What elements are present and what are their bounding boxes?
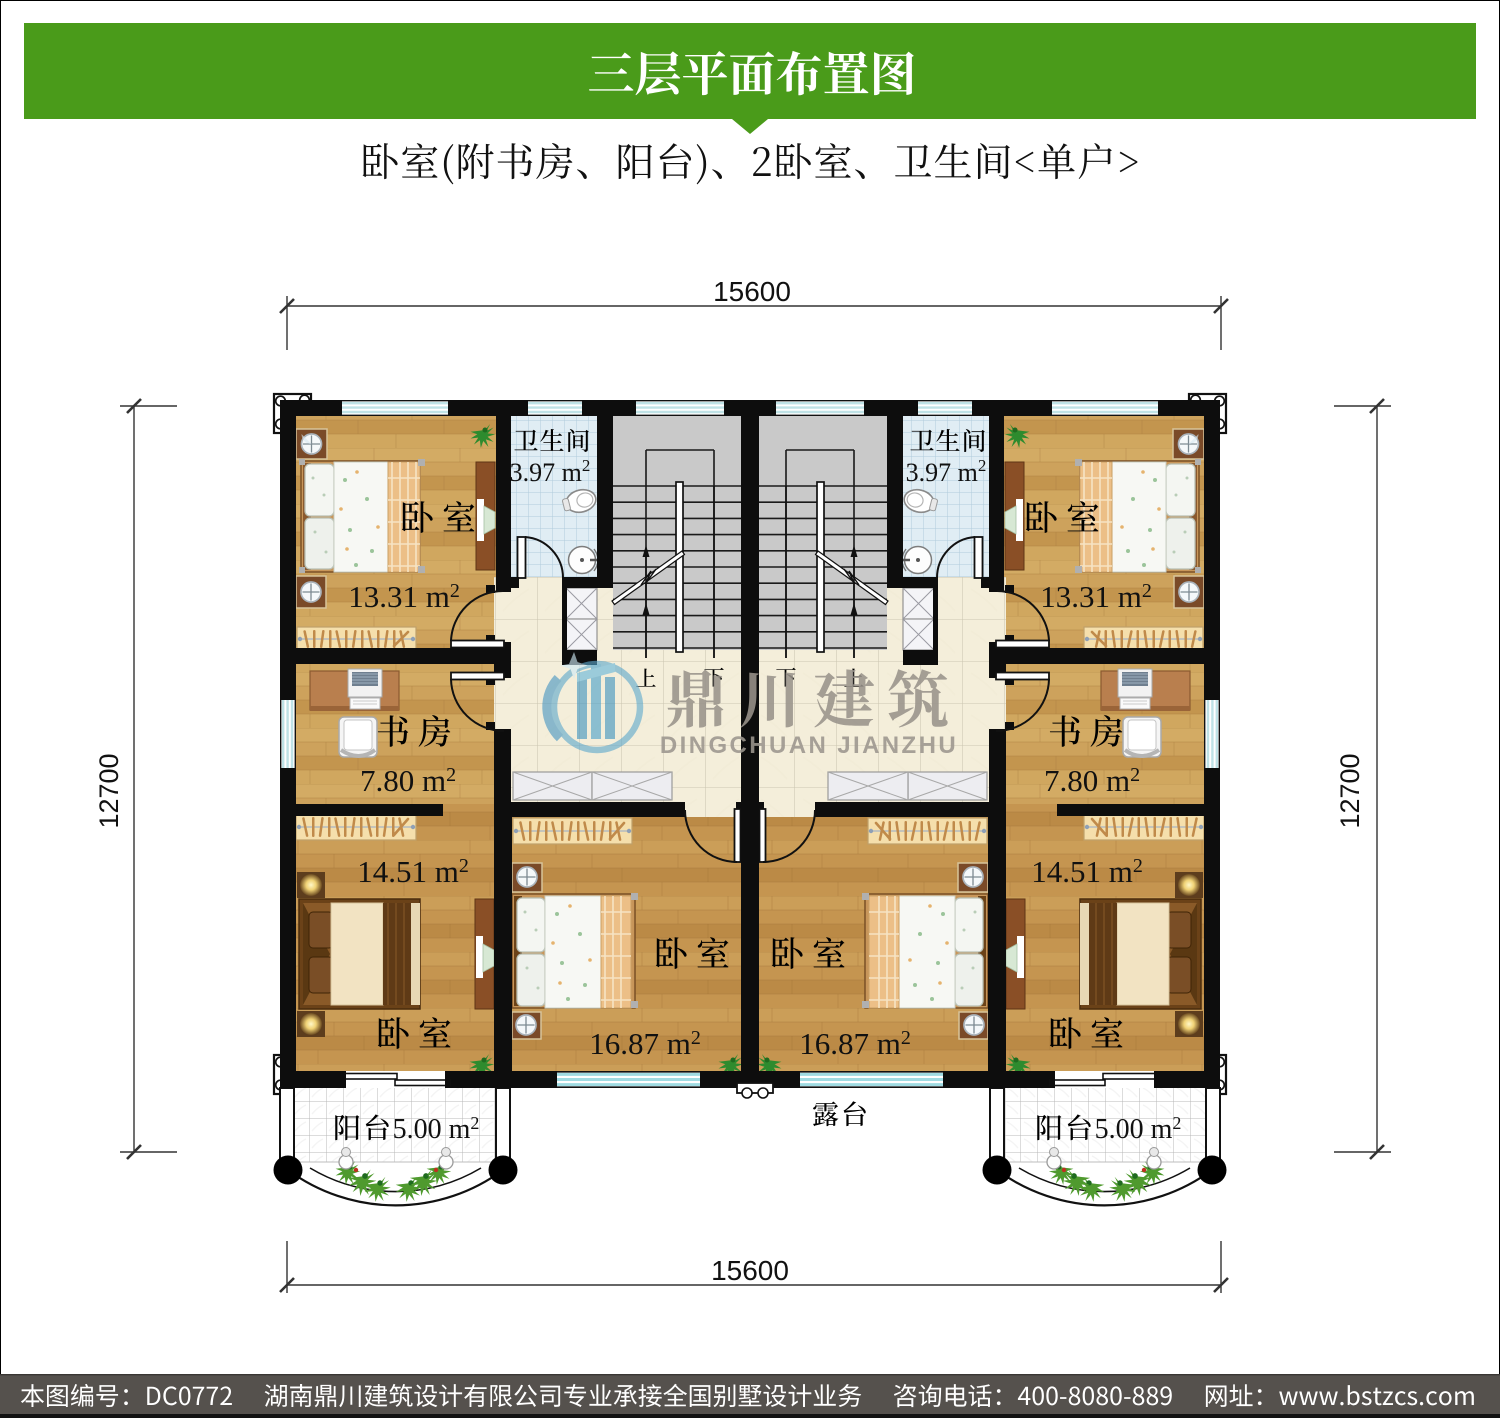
svg-text:16.87 m2: 16.87 m2 bbox=[799, 1026, 911, 1061]
svg-text:5.00 m2: 5.00 m2 bbox=[1095, 1113, 1182, 1145]
svg-text:16.87 m2: 16.87 m2 bbox=[589, 1026, 701, 1061]
svg-text:DINGCHUAN JIANZHU: DINGCHUAN JIANZHU bbox=[660, 732, 958, 759]
svg-text:14.51 m2: 14.51 m2 bbox=[1031, 854, 1143, 889]
svg-text:5.00 m2: 5.00 m2 bbox=[393, 1113, 480, 1145]
svg-text:12700: 12700 bbox=[94, 753, 124, 828]
svg-text:12700: 12700 bbox=[1335, 753, 1365, 828]
svg-text:13.31 m2: 13.31 m2 bbox=[1040, 579, 1152, 614]
svg-text:3.97 m2: 3.97 m2 bbox=[510, 456, 591, 487]
svg-text:15600: 15600 bbox=[713, 276, 791, 307]
svg-text:13.31 m2: 13.31 m2 bbox=[348, 579, 460, 614]
svg-text:7.80 m2: 7.80 m2 bbox=[360, 763, 456, 798]
svg-text:14.51 m2: 14.51 m2 bbox=[357, 854, 469, 889]
svg-text:7.80 m2: 7.80 m2 bbox=[1044, 763, 1140, 798]
svg-text:3.97 m2: 3.97 m2 bbox=[906, 456, 987, 487]
svg-text:15600: 15600 bbox=[711, 1255, 789, 1286]
